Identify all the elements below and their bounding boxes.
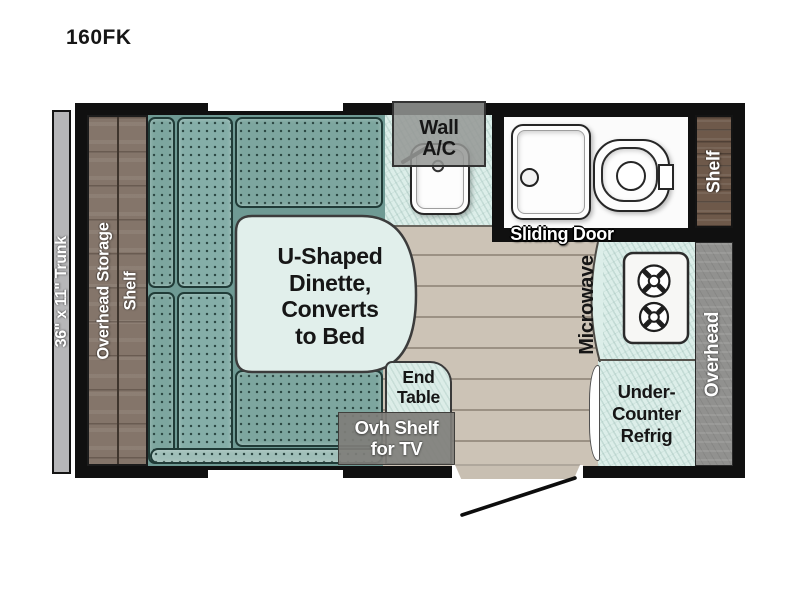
dinette-cushion bbox=[177, 292, 233, 464]
stove-burner-icon bbox=[640, 303, 668, 331]
dinette-cushion bbox=[148, 292, 175, 464]
dinette-cushion bbox=[235, 117, 383, 208]
overhead-storage-label-line1: Overhead Storage bbox=[91, 222, 118, 359]
overhead-storage-shelf: Overhead Storage Shelf bbox=[87, 115, 148, 466]
door-swing-icon bbox=[455, 470, 585, 522]
overhead-cabinet: Overhead bbox=[695, 242, 733, 466]
dinette-cushion bbox=[148, 117, 175, 288]
ovh-shelf-tv-label: Ovh Shelf for TV bbox=[338, 417, 455, 459]
shower-pan bbox=[511, 124, 591, 220]
wall-ac-label-line1: Wall bbox=[394, 118, 484, 139]
wall-ac-unit: Wall A/C bbox=[392, 101, 486, 167]
window bbox=[208, 470, 343, 480]
microwave-label: Microwave bbox=[576, 255, 598, 355]
toilet-flush-tab bbox=[658, 164, 674, 190]
end-table-label: End Table bbox=[385, 368, 452, 407]
overhead-label: Overhead bbox=[704, 311, 725, 396]
toilet-drain-icon bbox=[616, 161, 646, 191]
wall-ac-label-line2: A/C bbox=[394, 139, 484, 160]
trunk-label: 36" x 11" Trunk bbox=[53, 236, 71, 347]
microwave: Microwave bbox=[571, 246, 603, 364]
shelf-label: Shelf bbox=[704, 150, 724, 193]
counter-divider bbox=[598, 359, 695, 361]
page-title: 160FK bbox=[66, 26, 132, 49]
stove-burner-icon bbox=[639, 266, 670, 297]
toilet-icon bbox=[593, 139, 670, 212]
under-counter-refrig-label: Under- Counter Refrig bbox=[598, 381, 695, 447]
shower-drain-icon bbox=[520, 168, 539, 187]
floorplan: 160FK 36" x 11" Trunk Overhead Storage S… bbox=[0, 0, 800, 600]
dinette-cushion bbox=[177, 117, 233, 288]
partition-wall bbox=[695, 228, 733, 242]
trunk-storage: 36" x 11" Trunk bbox=[52, 110, 71, 474]
overhead-storage-label-line2: Shelf bbox=[118, 222, 145, 359]
shelf: Shelf bbox=[695, 115, 733, 228]
stove-cooktop bbox=[620, 248, 692, 348]
dinette-label: U-Shaped Dinette, Converts to Bed bbox=[247, 243, 413, 349]
window bbox=[208, 100, 343, 111]
